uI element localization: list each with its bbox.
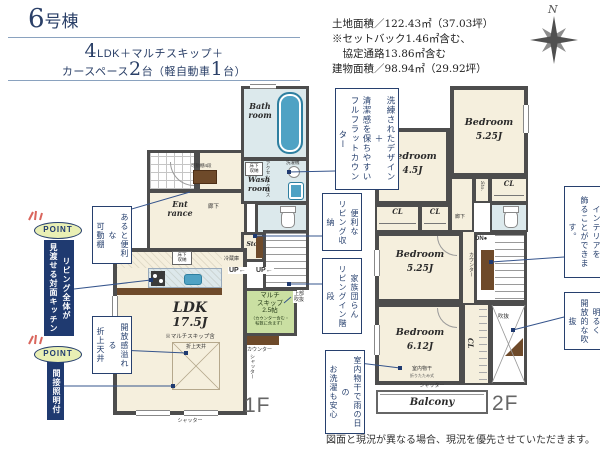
- storage-shelf: [256, 236, 263, 258]
- site-info: 土地面積／122.43㎡（37.03坪） ※セットバック1.46㎡含む、 協定通…: [332, 17, 493, 77]
- shutter-label-2f: シャッター: [408, 383, 456, 389]
- ldk-label: LDK: [150, 300, 230, 316]
- floor-label-1f: 1F: [244, 394, 271, 418]
- ldk-size: 17.5J: [150, 316, 230, 330]
- kitchen-floor: [117, 252, 222, 268]
- bedroom4-size: 6.12J: [385, 342, 455, 352]
- counter-label-1f: カウンター: [247, 347, 272, 353]
- spec-car-pre: カースペース: [62, 66, 129, 78]
- window: [523, 105, 529, 133]
- kitchen-counter-front: [117, 288, 222, 295]
- counter-2f: [481, 250, 494, 290]
- bath-label: Bath room: [245, 102, 275, 120]
- compass-icon: [530, 16, 578, 64]
- header-divider-top: [8, 37, 300, 38]
- spec-car-end: 台）: [223, 66, 246, 78]
- spec-car-mid: 台（軽自動車: [142, 66, 211, 78]
- bedroom2-label: Bedroom: [455, 118, 523, 129]
- counter-1f: [245, 336, 279, 345]
- closet-b-label: CL: [422, 208, 448, 216]
- upper-void-label: 上部 吹抜: [293, 291, 305, 303]
- multiskip-note: （カウンター含む・ 帖数に含まず）: [250, 317, 291, 326]
- fridge-label: 冷蔵庫: [224, 256, 239, 262]
- note-kadoudana: あると便利な 可動棚: [92, 206, 132, 264]
- building-area: 建物面積／98.94㎡（29.92坪）: [332, 62, 493, 77]
- floorplan-flyer: 6号棟 4LDK＋マルチスキップ＋ カースペース2台（軽自動車1台） 土地面積／…: [0, 0, 600, 449]
- stove-icon: [151, 271, 165, 286]
- hanger-rod: [379, 223, 416, 224]
- stair-treads: [495, 235, 524, 300]
- disclaimer: 図面と現況が異なる場合、現況を優先させていただきます。: [326, 431, 595, 446]
- monohoshi-label: 室内物干: [400, 366, 444, 372]
- void-slope: [505, 338, 523, 356]
- land-area: 土地面積／122.43㎡（37.03坪）: [332, 17, 493, 32]
- stairs-1f: [263, 230, 309, 290]
- compass-north-label: N: [548, 3, 558, 16]
- note-living-storage: 便利な リビング収納: [322, 193, 362, 251]
- hallway-label-2f: 廊下: [455, 214, 465, 220]
- emphasis-ticks-icon: [27, 333, 43, 346]
- toilet-tank-icon: [280, 206, 296, 213]
- void-label: 吹抜: [498, 314, 509, 320]
- burner-icon: [159, 279, 163, 283]
- toilet-tank-icon: [503, 206, 519, 213]
- closet-a-label: CL: [378, 208, 417, 216]
- setback-note: ※セットバック1.46㎡含む、: [332, 32, 493, 47]
- bedroom4-label: Bedroom: [385, 328, 455, 339]
- yukashita-box-kitchen: 床下 収納: [172, 251, 192, 265]
- balcony: Balcony: [376, 390, 488, 414]
- closet-c-label: CL: [493, 180, 525, 188]
- dn-label: DN●: [475, 236, 487, 242]
- header-divider-bottom: [8, 80, 300, 81]
- shutter-label-side-1f: シャッター: [249, 354, 255, 392]
- washer-label: 洗濯機: [286, 160, 300, 165]
- spec-car-count: 2: [129, 58, 142, 80]
- point-text-kitchen: リビング全体が 見渡せる対面キッチン: [44, 240, 74, 336]
- window: [136, 410, 170, 416]
- counter-label-2f: カウンター: [468, 252, 474, 292]
- building-title: 6号棟: [28, 4, 79, 34]
- hanger-rod: [424, 223, 446, 224]
- emphasis-ticks-icon: [27, 209, 43, 222]
- hallway-2f: [450, 177, 474, 232]
- hanger-rod: [494, 195, 524, 196]
- ldk-note: ※マルチスキップ含: [145, 332, 235, 340]
- window: [374, 325, 380, 355]
- monohoshi-note: 折りたたみ式: [402, 373, 442, 379]
- spec-kei-count: 1: [211, 58, 224, 80]
- balcony-label: Balcony: [378, 397, 486, 409]
- point-badge-2: POINT: [34, 346, 82, 363]
- window: [250, 84, 276, 89]
- washer-icon: [288, 166, 300, 178]
- closet-d-label: CL: [466, 338, 474, 349]
- note-oriage-tenjo: 開放感溢れる 折上天井: [92, 316, 132, 374]
- spec-line-2: カースペース2台（軽自動車1台）: [8, 58, 300, 80]
- building-number: 6: [28, 4, 45, 34]
- bedroom3-size: 5.25J: [385, 264, 455, 274]
- window: [374, 250, 380, 276]
- vanity-icon: [288, 182, 304, 200]
- up-label-2: UP←: [255, 267, 274, 274]
- kadoudana-shelf: [193, 170, 217, 184]
- burner-icon: [153, 274, 157, 278]
- kadoudana-label: 可動棚4段: [191, 163, 212, 168]
- point-text-lighting: 間接照明付き: [47, 362, 64, 420]
- point-badge-1: POINT: [34, 222, 82, 239]
- balcony-rail-line: [380, 394, 484, 395]
- note-interior: インテリアを 飾ることができます。: [564, 186, 600, 278]
- bathtub-icon: [277, 92, 303, 154]
- washroom-label: Wash room: [242, 176, 276, 193]
- building-suffix: 号棟: [45, 12, 79, 32]
- yukashita-box-wash: 床下 収納: [245, 162, 263, 176]
- bedroom2-size: 5.25J: [455, 132, 523, 142]
- oriage-label: 折上天井: [174, 344, 218, 350]
- sink-icon: [184, 274, 202, 285]
- storage-label-2f: Sto.: [479, 181, 485, 201]
- shutter-label-bottom-1f: シャッター: [150, 418, 230, 424]
- note-flat-counter: 洗練されたデザイン＋ 清潔感を保ちやすい フルフラットカウンター: [335, 88, 399, 190]
- kyotei-note: 協定通路13.86㎡含む: [332, 47, 493, 62]
- note-fukinuke: 明るく 開放的な吹抜: [564, 292, 600, 350]
- hallway-label-1f: 廊下: [208, 204, 219, 210]
- up-label-1: UP←: [228, 267, 247, 274]
- multiskip-label: マルチ スキップ 2.5帖: [246, 292, 294, 315]
- window: [184, 410, 218, 416]
- note-living-stairs: 家族団らん リビングイン階段: [322, 258, 362, 334]
- entrance-label: Ent rance: [160, 200, 200, 218]
- note-monohoshi: 室内物干で雨の日の お洗濯も安心: [325, 350, 365, 434]
- floor-label-2f: 2F: [492, 392, 519, 416]
- closet-ladder: [479, 309, 487, 381]
